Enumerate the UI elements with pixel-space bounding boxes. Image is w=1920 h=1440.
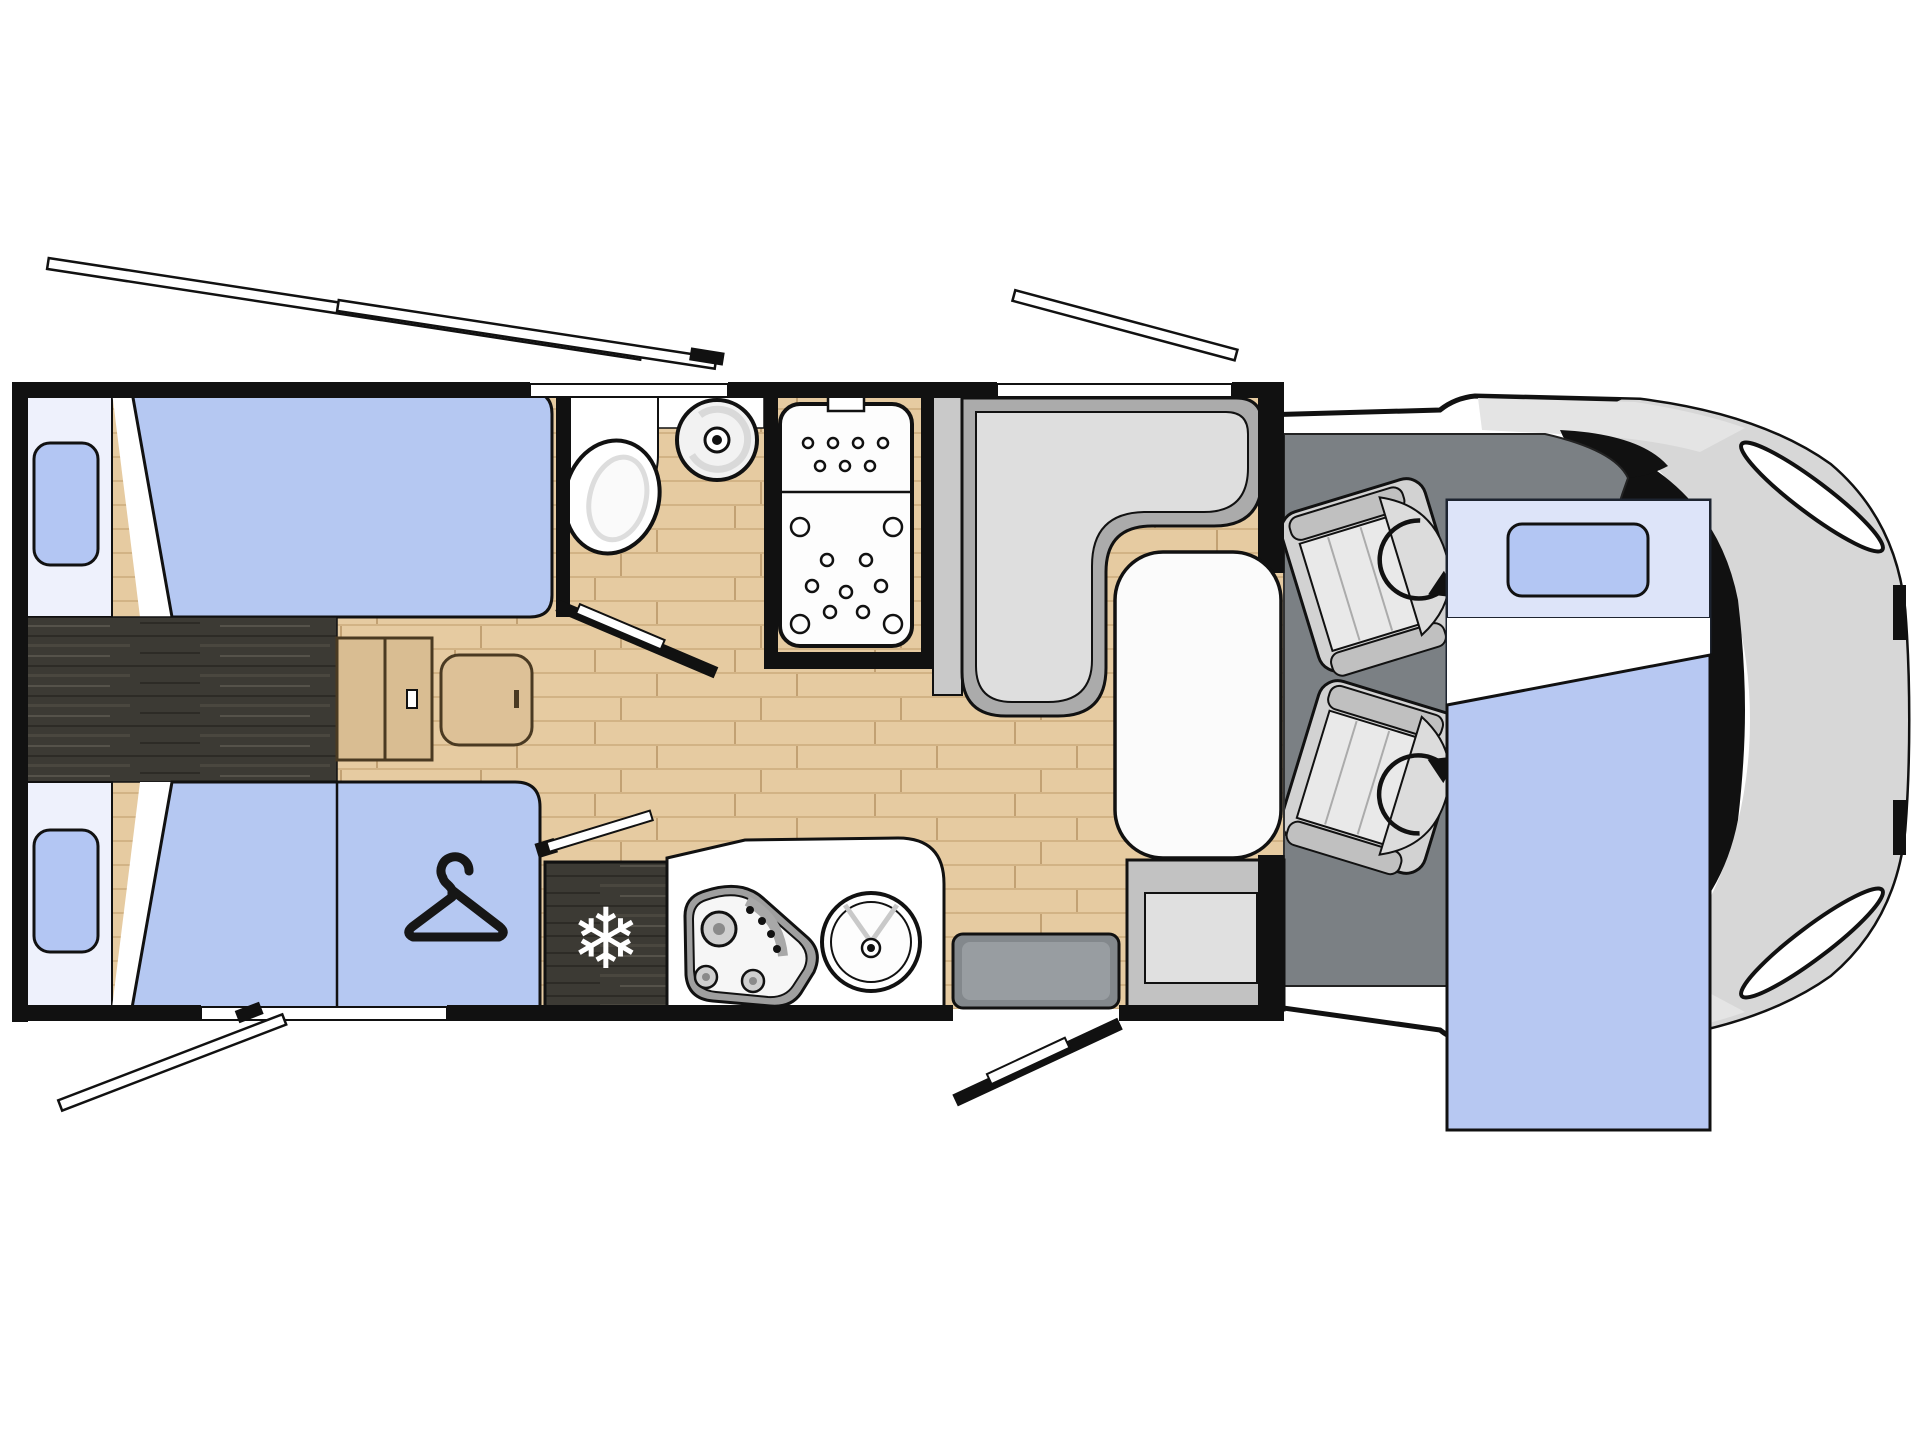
walkway <box>24 617 337 782</box>
wall-top-1 <box>12 382 530 398</box>
dinette-table <box>1115 552 1281 858</box>
window-stay-bar <box>337 300 716 369</box>
wall-right-bottom <box>1258 855 1284 1021</box>
duvet <box>132 392 552 617</box>
wall-bottom-1 <box>12 1005 201 1021</box>
rear-bed-top <box>24 392 552 617</box>
floorplan-canvas: ❄ <box>0 0 1920 1440</box>
wall-top-2 <box>728 382 997 398</box>
chest-handle <box>407 690 417 708</box>
floorplan: ❄ <box>0 0 1920 1440</box>
pillow <box>34 443 98 565</box>
pillow <box>34 830 98 952</box>
duvet <box>1447 655 1710 1130</box>
bathroom-wall-right <box>764 397 778 669</box>
snowflake-icon: ❄ <box>571 890 641 988</box>
front-bed <box>1447 500 1710 1130</box>
wall-right-top <box>1258 382 1284 573</box>
wall-left <box>12 382 28 1022</box>
shower <box>764 393 935 669</box>
sofa-backrest <box>933 397 962 695</box>
kitchen: ❄ <box>545 838 1284 1010</box>
kitchen-sink <box>822 893 920 991</box>
grille-mark-bottom <box>1893 800 1906 855</box>
bathroom-sink <box>677 400 757 480</box>
rear-bed-bottom <box>24 782 540 1008</box>
wall-bottom-2 <box>447 1005 953 1021</box>
window-bedroom-top <box>530 384 728 397</box>
entry-step <box>953 934 1119 1008</box>
entry-door-swing <box>951 1014 1123 1106</box>
window-stay-bar <box>1012 290 1237 360</box>
window-lounge-top <box>997 384 1232 397</box>
grille-mark-top <box>1893 585 1906 640</box>
bathroom-wall-left <box>556 397 570 617</box>
shower-wall-bottom <box>764 652 935 669</box>
window-stay-bar <box>58 1014 286 1110</box>
pillow <box>1508 524 1648 596</box>
bedside-table-handle <box>514 690 519 708</box>
